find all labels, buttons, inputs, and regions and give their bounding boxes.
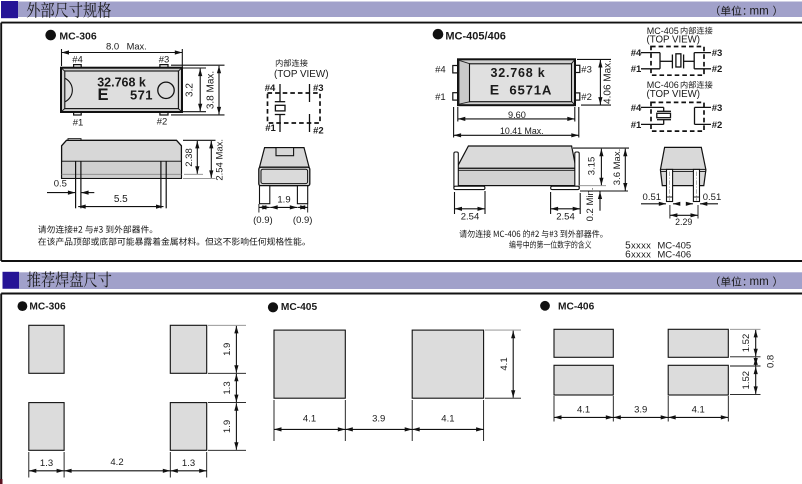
svg-text:3.9: 3.9: [634, 404, 647, 415]
svg-text:0.2 Min.: 0.2 Min.: [585, 188, 596, 222]
svg-text:4.1: 4.1: [577, 404, 590, 415]
svg-text:571: 571: [130, 87, 153, 102]
svg-text:MC-406: MC-406: [657, 250, 691, 261]
svg-text:#4: #4: [435, 64, 446, 75]
svg-text:1.9: 1.9: [277, 195, 290, 206]
svg-text:mm: mm: [750, 5, 769, 17]
svg-text:8.0: 8.0: [106, 41, 119, 52]
svg-text:3.9: 3.9: [372, 413, 385, 424]
svg-text:#3: #3: [159, 55, 170, 66]
svg-text:#2: #2: [712, 120, 723, 131]
svg-text:2.54 Max.: 2.54 Max.: [214, 139, 225, 181]
svg-text:9.60: 9.60: [508, 110, 526, 120]
svg-text:Max.: Max.: [127, 41, 147, 51]
svg-text:xxxx: xxxx: [631, 250, 651, 261]
svg-text:#2: #2: [313, 126, 324, 137]
svg-text:4.2: 4.2: [110, 457, 123, 468]
svg-text:#1: #1: [631, 64, 642, 75]
svg-text:(TOP VIEW): (TOP VIEW): [647, 34, 700, 45]
svg-text:E: E: [490, 82, 499, 98]
svg-text:2.38: 2.38: [184, 148, 195, 167]
svg-text:MC-306: MC-306: [29, 301, 66, 312]
svg-text:4.1: 4.1: [303, 413, 316, 424]
svg-text:#3: #3: [712, 48, 723, 59]
svg-text:0.51: 0.51: [703, 192, 722, 203]
svg-text:1.9: 1.9: [222, 420, 233, 433]
svg-text:3.2: 3.2: [184, 83, 195, 97]
svg-text:#4: #4: [265, 83, 276, 94]
svg-text:#3: #3: [712, 103, 723, 114]
svg-text:MC-405/406: MC-405/406: [445, 30, 506, 42]
svg-text:#3: #3: [581, 64, 592, 75]
svg-text:2.54: 2.54: [461, 212, 480, 223]
svg-text:3.6 Max.: 3.6 Max.: [612, 149, 623, 185]
svg-text:1.52: 1.52: [741, 371, 752, 390]
svg-text:#3: #3: [313, 83, 324, 94]
svg-text:1.9: 1.9: [222, 343, 233, 356]
svg-text:1.3: 1.3: [40, 458, 53, 469]
svg-text:32.768 k: 32.768 k: [491, 66, 546, 80]
svg-text:5.5: 5.5: [114, 194, 128, 205]
svg-text:2.54: 2.54: [556, 212, 575, 223]
svg-text:4.1: 4.1: [499, 357, 510, 370]
svg-text:1.3: 1.3: [222, 381, 233, 394]
svg-text:0.8: 0.8: [766, 355, 777, 368]
svg-text:#2: #2: [157, 116, 168, 127]
svg-text:4.1: 4.1: [692, 404, 705, 415]
svg-text:4.1: 4.1: [441, 413, 454, 424]
svg-text:MC-406: MC-406: [558, 302, 595, 313]
svg-text:#1: #1: [73, 117, 84, 128]
svg-text:#2: #2: [581, 92, 592, 103]
svg-text:(TOP VIEW): (TOP VIEW): [647, 89, 700, 100]
svg-text:#1: #1: [631, 120, 642, 131]
svg-text:E: E: [98, 86, 109, 104]
svg-text:#4: #4: [631, 103, 642, 114]
svg-text:1.52: 1.52: [741, 334, 752, 353]
svg-text:(TOP VIEW): (TOP VIEW): [274, 69, 329, 80]
svg-text:3.15: 3.15: [587, 157, 598, 176]
svg-text:#1: #1: [435, 92, 446, 103]
svg-text:MC-306: MC-306: [59, 31, 97, 43]
svg-text:MC-405: MC-405: [281, 302, 318, 313]
svg-text:#2: #2: [712, 64, 723, 75]
svg-text:#1: #1: [265, 123, 276, 134]
svg-text:#4: #4: [631, 48, 642, 59]
svg-text:(0.9): (0.9): [253, 215, 273, 226]
svg-text:10.41 Max.: 10.41 Max.: [500, 126, 544, 136]
svg-text:mm: mm: [750, 276, 769, 288]
svg-text:4.06 Max.: 4.06 Max.: [602, 60, 613, 104]
svg-text:1.3: 1.3: [182, 458, 195, 469]
svg-text:0.51: 0.51: [643, 192, 662, 203]
svg-text:(0.9): (0.9): [293, 215, 313, 226]
svg-text:3.8 Max.: 3.8 Max.: [205, 71, 216, 109]
svg-text:0.5: 0.5: [54, 178, 67, 189]
svg-text:2.29: 2.29: [675, 217, 692, 227]
svg-text:#4: #4: [72, 55, 83, 66]
svg-text:6571A: 6571A: [509, 82, 552, 97]
